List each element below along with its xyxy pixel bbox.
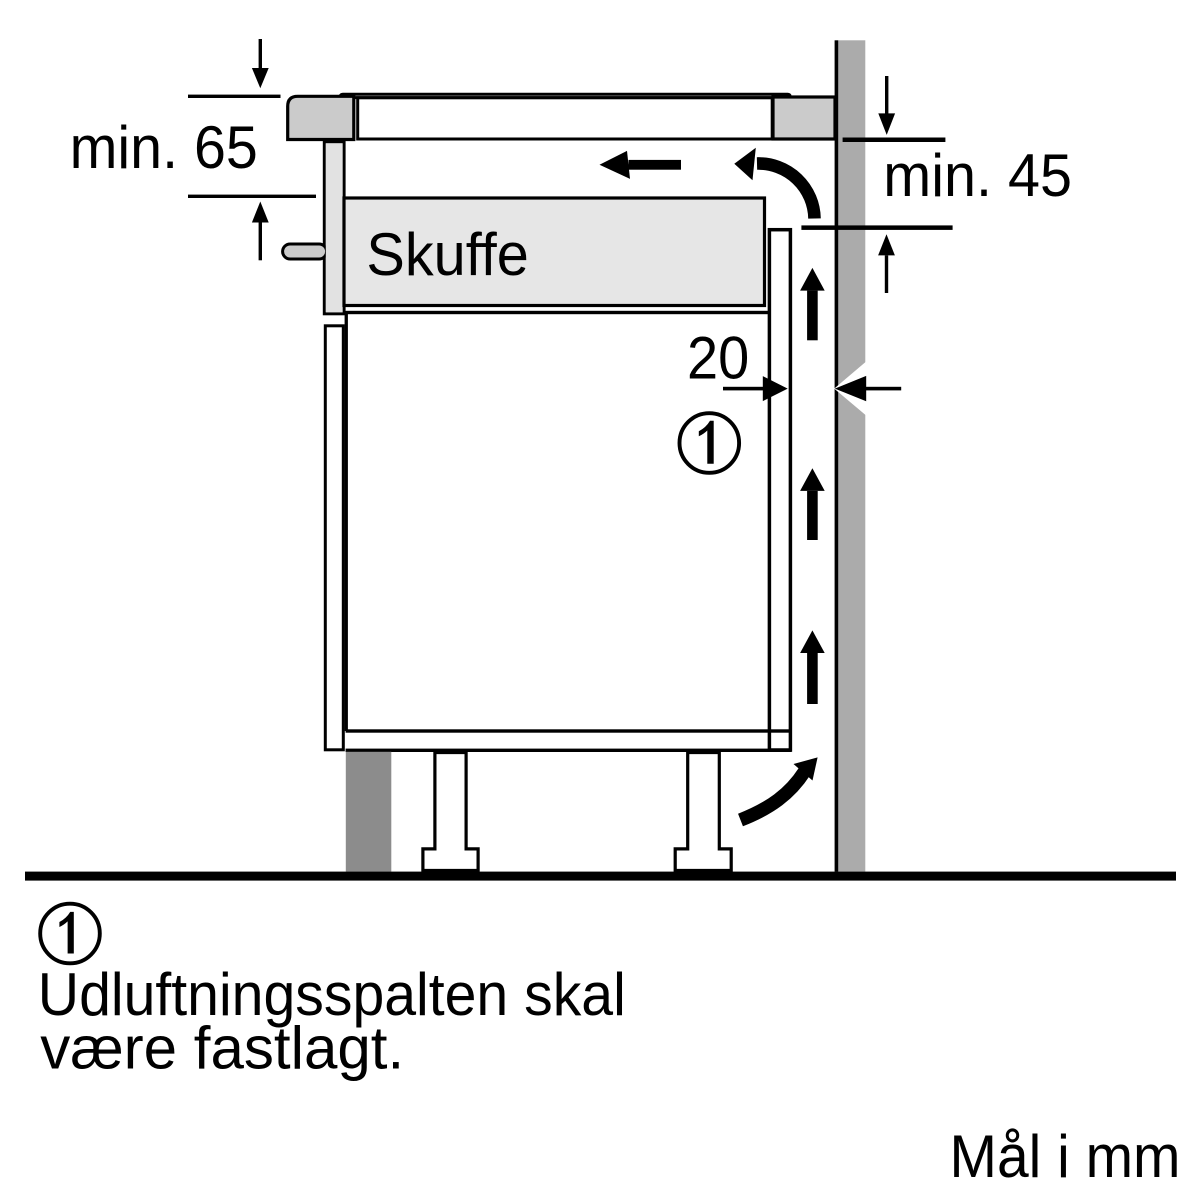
svg-text:Skuffe: Skuffe xyxy=(366,220,528,288)
svg-text:Mål i mm: Mål i mm xyxy=(950,1122,1181,1190)
svg-text:20: 20 xyxy=(687,323,749,391)
svg-text:være fastlagt.: være fastlagt. xyxy=(40,1014,404,1082)
svg-text:min. 45: min. 45 xyxy=(883,141,1072,209)
svg-text:min. 65: min. 65 xyxy=(70,113,258,181)
